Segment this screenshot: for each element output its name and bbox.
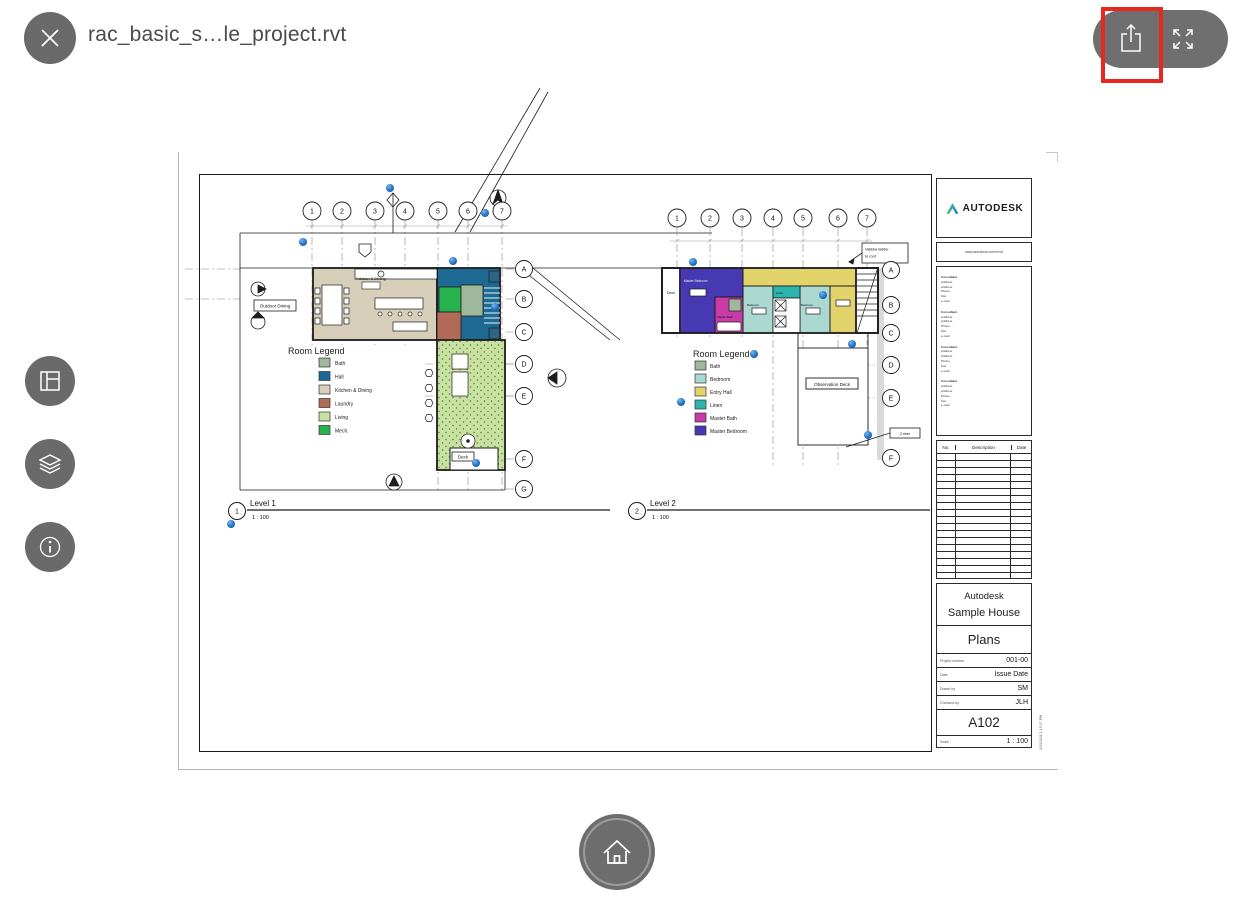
- consultant-block: ConsultantAddressAddressPhoneFaxe-mail: [941, 275, 983, 304]
- titleblock-logo-box: AUTODESK: [936, 178, 1032, 238]
- viewer-app: { "header": { "filename": "rac_basic_s…l…: [0, 0, 1233, 924]
- titleblock-consultants: ConsultantAddressAddressPhoneFaxe-mail C…: [936, 266, 1032, 436]
- field-date: DateIssue Date: [937, 668, 1031, 682]
- sheets-panel-button[interactable]: [25, 356, 75, 406]
- revision-row: [937, 558, 1031, 565]
- paper-edge-bottom: [178, 769, 1058, 770]
- revision-row: [937, 460, 1031, 467]
- revision-row: [937, 481, 1031, 488]
- website-text: www.autodesk.com/revit: [965, 250, 1003, 254]
- client-box: Autodesk Sample House: [937, 584, 1031, 626]
- titleblock-website: www.autodesk.com/revit: [936, 242, 1032, 262]
- revision-row: [937, 474, 1031, 481]
- revision-row: [937, 467, 1031, 474]
- revision-rows: [937, 453, 1031, 579]
- consultant-block: ConsultantAddressAddressPhoneFaxe-mail: [941, 310, 983, 339]
- sheet-paper[interactable]: [199, 174, 1036, 752]
- home-button[interactable]: [579, 814, 655, 890]
- plot-stamp: 3/31/2011 1:15:37 PM: [1039, 715, 1043, 750]
- autodesk-brand-text: AUTODESK: [963, 203, 1024, 214]
- sheet-views-icon: [37, 368, 63, 394]
- info-icon: [37, 534, 63, 560]
- scale-row: Scale1 : 100: [937, 736, 1031, 747]
- revision-table: No. Description Date: [936, 440, 1032, 579]
- layers-icon: [36, 450, 64, 478]
- share-button[interactable]: [1105, 10, 1157, 68]
- revision-row: [937, 488, 1031, 495]
- info-button[interactable]: [25, 522, 75, 572]
- paper-corner-tick-v: [1057, 152, 1058, 162]
- paper-edge-left: [178, 152, 179, 770]
- share-icon: [1114, 22, 1148, 56]
- revision-row: [937, 495, 1031, 502]
- revision-row: [937, 572, 1031, 579]
- revision-table-header: No. Description Date: [937, 441, 1031, 453]
- project-name: Sample House: [937, 607, 1031, 619]
- fullscreen-button[interactable]: [1157, 10, 1209, 68]
- titleblock: AUTODESK www.autodesk.com/revit Consulta…: [931, 174, 1036, 752]
- field-checked-by: Checked byJLH: [937, 696, 1031, 710]
- revision-row: [937, 530, 1031, 537]
- revision-row: [937, 544, 1031, 551]
- client-name: Autodesk: [937, 591, 1031, 602]
- document-title: rac_basic_s…le_project.rvt: [88, 23, 346, 47]
- sheet-number: A102: [937, 710, 1031, 736]
- revision-row: [937, 509, 1031, 516]
- field-drawn-by: Drawn bySM: [937, 682, 1031, 696]
- revision-row: [937, 551, 1031, 558]
- field-project-number: Project number001-00: [937, 654, 1031, 668]
- close-button[interactable]: [24, 12, 76, 64]
- layers-button[interactable]: [25, 439, 75, 489]
- consultant-block: ConsultantAddressAddressPhoneFaxe-mail: [941, 345, 983, 374]
- autodesk-logo-icon: [945, 201, 960, 216]
- titleblock-info: Autodesk Sample House Plans Project numb…: [936, 583, 1032, 748]
- revision-row: [937, 565, 1031, 572]
- home-button-ring: [583, 818, 651, 886]
- fullscreen-icon: [1168, 24, 1198, 54]
- revision-row: [937, 537, 1031, 544]
- close-icon: [38, 26, 62, 50]
- top-right-toolbar: [1093, 10, 1228, 68]
- revision-row: [937, 523, 1031, 530]
- revision-row: [937, 516, 1031, 523]
- consultant-block: ConsultantAddressAddressPhoneFaxe-mail: [941, 379, 983, 408]
- sheet-title: Plans: [937, 626, 1031, 654]
- revision-row: [937, 502, 1031, 509]
- revision-row: [937, 453, 1031, 460]
